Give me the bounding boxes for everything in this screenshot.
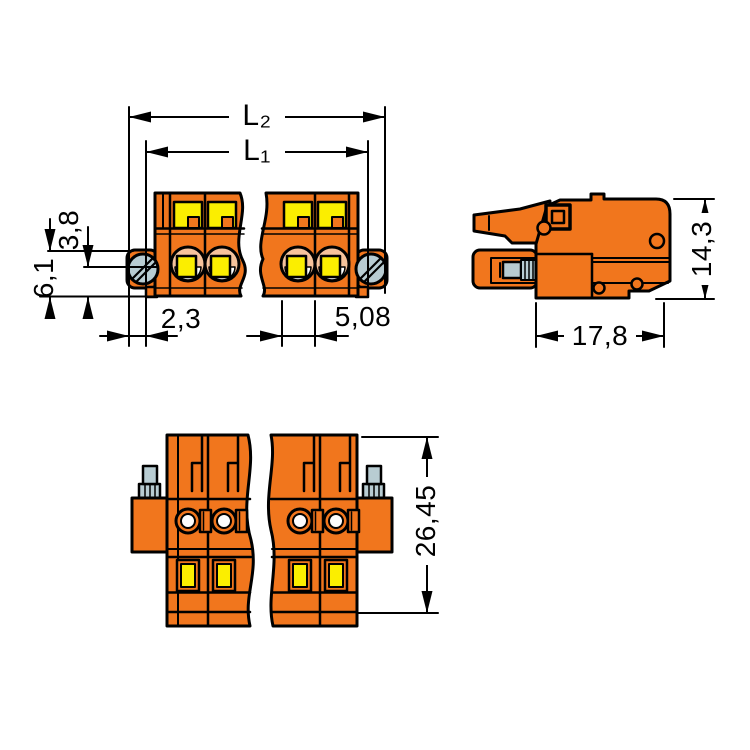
dim-label-L1: L₁ — [229, 136, 285, 166]
dim-label-5-08: 5,08 — [329, 303, 397, 331]
dim-label-6-1: 6,1 — [31, 250, 57, 306]
dim-label-3-8: 3,8 — [56, 202, 82, 258]
bottom-right-flange — [357, 498, 392, 552]
bottom-left-flange — [132, 498, 167, 552]
terminal-block-dimension-drawing: L₂ L₁ 3,8 6,1 2,3 5,08 17,8 14,3 26,45 — [0, 0, 750, 750]
left-screw-stud — [139, 466, 160, 498]
side-screw-head — [503, 262, 521, 278]
left-fixing-screw — [128, 254, 158, 284]
right-fixing-screw — [356, 254, 386, 284]
side-pin-hole — [594, 283, 605, 294]
dim-label-2-3: 2,3 — [152, 305, 210, 333]
dim-label-26-45: 26,45 — [412, 477, 440, 565]
side-hole — [650, 234, 664, 248]
front-view — [127, 193, 387, 297]
dim-label-14-3: 14,3 — [688, 213, 716, 285]
side-pin-hole — [632, 279, 643, 290]
dim-label-17-8: 17,8 — [564, 322, 636, 350]
bottom-view — [132, 435, 392, 626]
side-hole — [538, 222, 551, 235]
dim-label-L2: L₂ — [229, 101, 285, 131]
right-screw-stud — [363, 466, 384, 498]
side-view — [473, 194, 670, 298]
drawing-canvas — [0, 0, 750, 750]
